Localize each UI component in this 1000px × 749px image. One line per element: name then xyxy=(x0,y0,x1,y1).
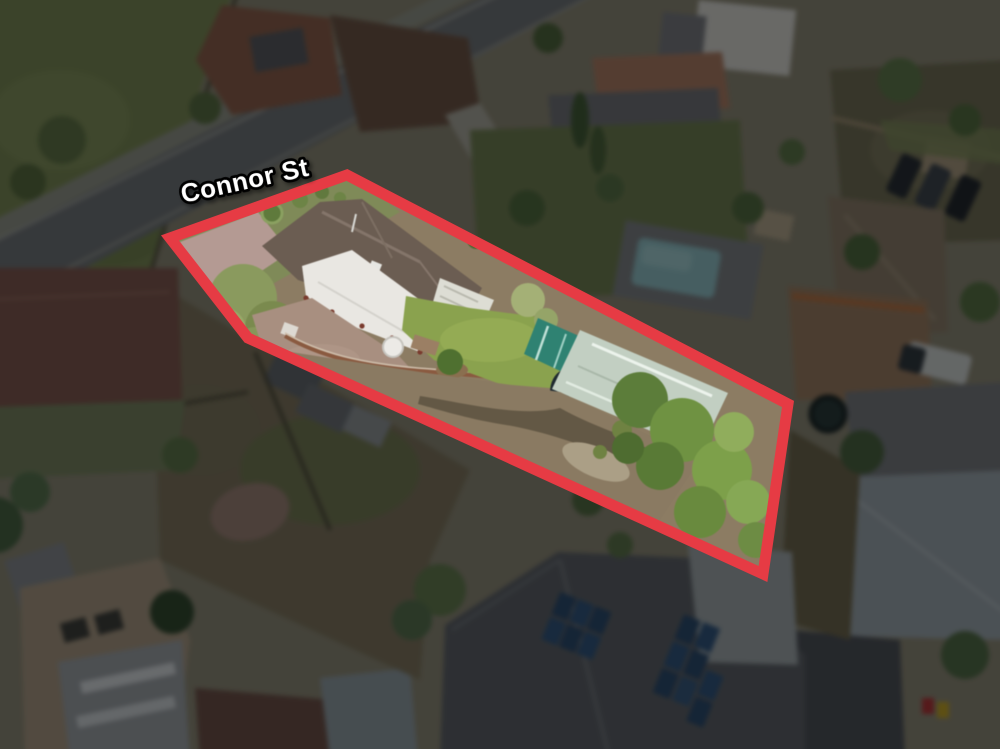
rear-tree xyxy=(726,480,770,524)
water-tank xyxy=(383,337,403,357)
lawn-tree xyxy=(437,349,463,375)
aerial-property-photo: Connor St xyxy=(0,0,1000,749)
rear-tree xyxy=(674,486,726,538)
aerial-scene: Connor St xyxy=(0,0,1000,749)
weeds xyxy=(593,445,607,459)
rear-tree xyxy=(714,412,754,452)
rear-tree xyxy=(612,432,644,464)
pergola-post xyxy=(359,323,364,328)
